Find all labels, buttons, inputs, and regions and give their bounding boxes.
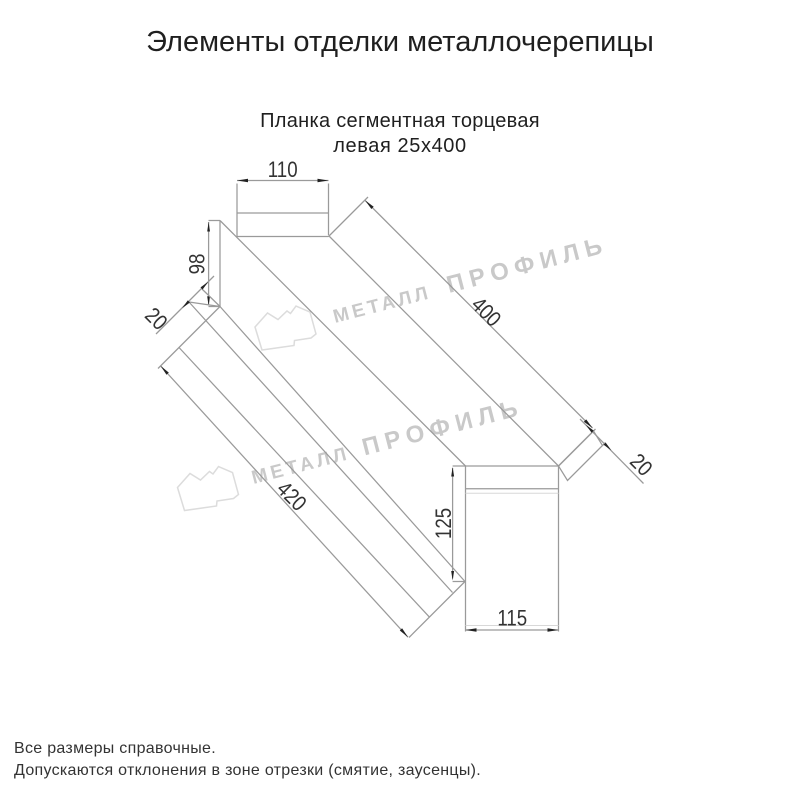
svg-text:Элементы отделки металлочерепи: Элементы отделки металлочерепицы [146,26,654,58]
svg-text:20: 20 [625,450,656,481]
svg-text:МЕТАЛЛ: МЕТАЛЛ [249,443,352,489]
svg-text:98: 98 [186,254,210,275]
svg-text:ПРОФИЛЬ: ПРОФИЛЬ [444,231,611,299]
svg-text:Все размеры справочные.: Все размеры справочные. [14,740,216,757]
svg-text:левая 25х400: левая 25х400 [333,135,467,157]
svg-text:Планка сегментная торцевая: Планка сегментная торцевая [260,110,540,132]
svg-text:110: 110 [268,159,298,183]
svg-text:400: 400 [466,293,505,332]
svg-text:20: 20 [140,304,171,335]
svg-text:125: 125 [432,508,456,539]
svg-text:115: 115 [497,607,527,631]
svg-text:ПРОФИЛЬ: ПРОФИЛЬ [359,394,526,462]
svg-text:Допускаются отклонения в зоне: Допускаются отклонения в зоне отрезки (с… [14,762,481,779]
